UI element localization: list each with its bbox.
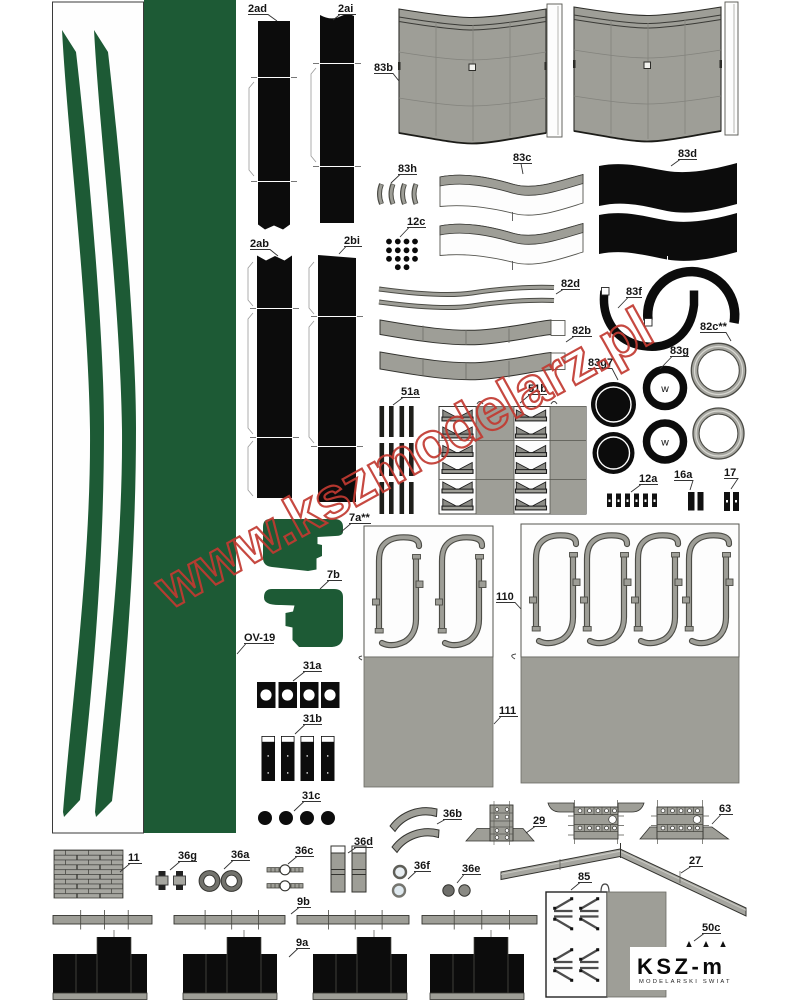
svg-text:36a: 36a bbox=[231, 849, 250, 861]
svg-text:12a: 12a bbox=[639, 473, 658, 485]
svg-text:2ad: 2ad bbox=[248, 3, 267, 15]
svg-text:36d: 36d bbox=[354, 836, 373, 848]
svg-text:51a: 51a bbox=[401, 386, 420, 398]
svg-text:7b: 7b bbox=[327, 569, 340, 581]
svg-text:MODELARSKI SWIAT: MODELARSKI SWIAT bbox=[639, 979, 732, 985]
svg-text:82d: 82d bbox=[561, 278, 580, 290]
svg-text:63: 63 bbox=[719, 803, 731, 815]
svg-text:36c: 36c bbox=[295, 845, 313, 857]
svg-text:2ai: 2ai bbox=[338, 3, 353, 15]
svg-text:83b: 83b bbox=[374, 62, 393, 74]
svg-text:31b: 31b bbox=[303, 713, 322, 725]
svg-text:36e: 36e bbox=[462, 863, 480, 875]
svg-text:17: 17 bbox=[724, 467, 736, 479]
svg-text:82c**: 82c** bbox=[700, 321, 728, 333]
svg-text:110: 110 bbox=[496, 591, 514, 603]
svg-text:36b: 36b bbox=[443, 808, 462, 820]
svg-text:111: 111 bbox=[499, 705, 516, 717]
svg-text:85: 85 bbox=[578, 871, 590, 883]
svg-text:9a: 9a bbox=[296, 937, 309, 949]
svg-text:36g: 36g bbox=[178, 850, 197, 862]
svg-text:w: w bbox=[660, 383, 669, 395]
svg-text:KSZ-m: KSZ-m bbox=[637, 954, 725, 979]
svg-text:16a: 16a bbox=[674, 469, 693, 481]
svg-text:29: 29 bbox=[533, 815, 545, 827]
svg-text:31c: 31c bbox=[302, 790, 320, 802]
svg-text:83d: 83d bbox=[678, 148, 697, 160]
svg-text:50c: 50c bbox=[702, 922, 720, 934]
svg-text:w: w bbox=[660, 437, 669, 449]
svg-text:11: 11 bbox=[128, 852, 140, 864]
svg-text:2ab: 2ab bbox=[250, 238, 269, 250]
svg-text:9b: 9b bbox=[297, 896, 310, 908]
svg-text:31a: 31a bbox=[303, 660, 322, 672]
svg-text:12c: 12c bbox=[407, 216, 425, 228]
svg-text:83c: 83c bbox=[513, 152, 531, 164]
svg-text:83h: 83h bbox=[398, 163, 417, 175]
svg-text:2bi: 2bi bbox=[344, 235, 360, 247]
svg-text:OV-19: OV-19 bbox=[244, 632, 275, 644]
svg-text:36f: 36f bbox=[414, 860, 430, 872]
svg-text:27: 27 bbox=[689, 855, 701, 867]
svg-text:83g: 83g bbox=[670, 345, 689, 357]
